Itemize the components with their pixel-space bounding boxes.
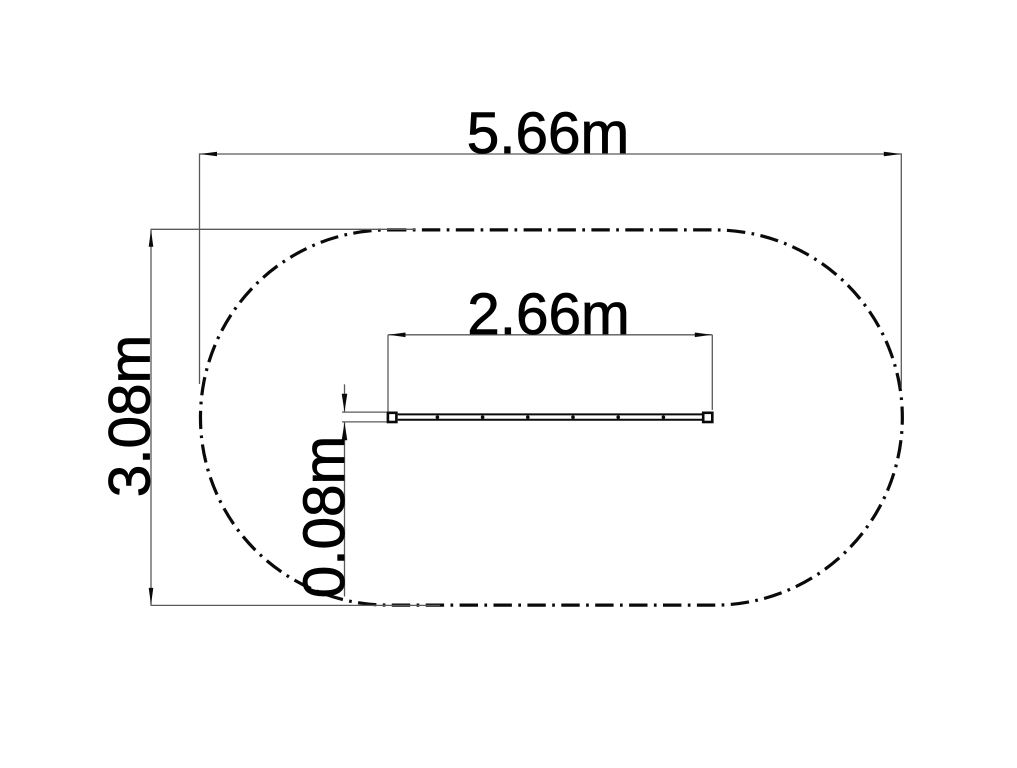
svg-text:0.08m: 0.08m (292, 436, 357, 599)
svg-text:3.08m: 3.08m (98, 335, 163, 498)
svg-text:5.66m: 5.66m (467, 101, 630, 166)
svg-text:2.66m: 2.66m (467, 282, 630, 347)
